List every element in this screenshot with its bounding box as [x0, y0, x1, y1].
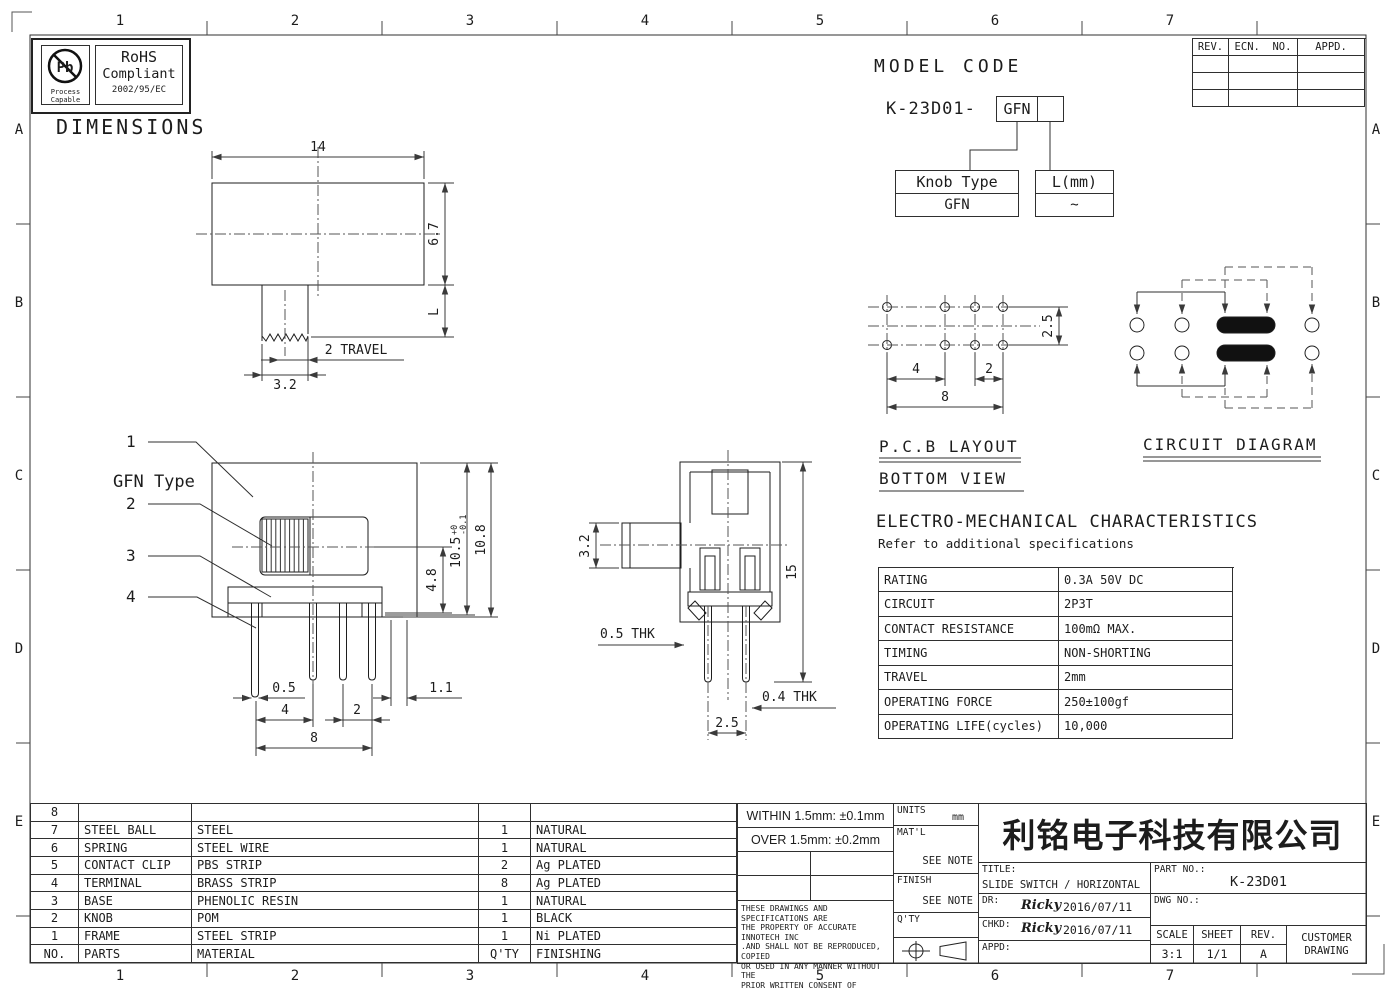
drawn-by-cell: DR: Ricky 2016/07/11	[978, 893, 1151, 918]
tolerance-lower: -0.1	[459, 515, 469, 535]
units-value: mm	[952, 812, 964, 823]
parts-header-qty: Q'TY	[479, 945, 531, 963]
part-no: 1	[31, 928, 79, 946]
front-view-drawing	[212, 452, 448, 697]
model-code-prefix: K-23D01-	[886, 99, 976, 119]
part-material	[192, 804, 479, 822]
part-qty: 1	[479, 822, 531, 840]
zone-col-label: 4	[641, 13, 649, 29]
part-qty: 8	[479, 875, 531, 893]
sheet-value: 1/1	[1207, 947, 1228, 961]
callout-3: 3	[126, 546, 138, 565]
part-material: POM	[192, 910, 479, 928]
dwg-number-label: DWG NO.:	[1154, 895, 1200, 906]
part-no: 8	[31, 804, 79, 822]
drawn-label: DR:	[982, 895, 999, 906]
front-span-dim: 8	[310, 731, 318, 746]
callout-1: 1	[126, 432, 138, 451]
em-label: CIRCUIT	[879, 592, 1059, 616]
length-value: ~	[1035, 193, 1114, 217]
zone-col-label: 7	[1166, 968, 1174, 984]
zone-col-label: 4	[641, 968, 649, 984]
front-view-type-label: GFN Type	[113, 472, 195, 492]
part-finishing: NATURAL	[531, 892, 737, 910]
top-view-drawing	[196, 147, 440, 356]
tolerance-empty-cell	[810, 875, 894, 901]
model-code-connectors	[970, 121, 1050, 170]
side-frame-thickness-dim: 0.5 THK	[600, 627, 655, 642]
customer-drawing-label: CUSTOMER DRAWING	[1301, 932, 1352, 958]
length-table: L(mm) ~	[1035, 170, 1114, 217]
tolerance-over-cell: OVER 1.5mm: ±0.2mm	[737, 827, 894, 852]
em-value: 2P3T	[1059, 592, 1233, 616]
zone-col-label: 2	[291, 968, 299, 984]
rohs-compliant-box: RoHS Compliant 2002/95/EC	[95, 45, 183, 105]
zone-col-label: 3	[466, 968, 474, 984]
top-view-stem-dim: 3.2	[273, 378, 296, 393]
model-code-heading: MODEL CODE	[874, 56, 1022, 77]
front-knob-base-dim: 4.8	[425, 568, 440, 591]
front-pin-width-dim: 0.5	[272, 681, 295, 696]
approved-by-cell: APPD:	[978, 940, 1151, 964]
tolerance-over: OVER 1.5mm: ±0.2mm	[751, 833, 880, 847]
material-value: SEE NOTE	[922, 855, 973, 867]
zone-row-label: C	[1372, 468, 1380, 484]
part-qty: 1	[479, 839, 531, 857]
rev-value: A	[1260, 947, 1267, 961]
tolerance-within-cell: WITHIN 1.5mm: ±0.1mm	[737, 803, 894, 828]
pcb-layout-title: P.C.B LAYOUT	[879, 437, 1019, 456]
part-no: 4	[31, 875, 79, 893]
material-label: MAT'L	[897, 827, 926, 838]
part-name	[79, 804, 192, 822]
rev-empty-cell	[1193, 90, 1229, 107]
part-material: STEEL STRIP	[192, 928, 479, 946]
part-number-cell: PART NO.: K-23D01	[1150, 862, 1367, 894]
zone-col-label: 1	[116, 13, 124, 29]
callout-4: 4	[126, 587, 138, 606]
units-label: UNITS	[897, 805, 926, 816]
part-finishing: Ag PLATED	[531, 875, 737, 893]
part-finishing	[531, 804, 737, 822]
engineering-drawing-sheet: 1 2 3 4 5 6 7 1 2 3 4 5 6 7 A B C D E A …	[0, 0, 1397, 988]
circuit-diagram-title: CIRCUIT DIAGRAM	[1143, 435, 1318, 454]
front-offset-dim: 1.1	[429, 681, 452, 696]
slider-contact	[1217, 317, 1275, 333]
sheet-label: SHEET	[1201, 929, 1233, 941]
pb-crossed-icon: Pb	[42, 46, 89, 86]
part-no: 7	[31, 822, 79, 840]
part-number-value: K-23D01	[1151, 874, 1366, 890]
part-finishing: Ni PLATED	[531, 928, 737, 946]
rev-label: REV.	[1251, 929, 1276, 941]
front-view-dimensions	[233, 463, 498, 756]
finish-value: SEE NOTE	[922, 895, 973, 907]
scale-value-cell: 3:1	[1150, 944, 1194, 964]
em-label: OPERATING FORCE	[879, 690, 1059, 714]
directive-label: 2002/95/EC	[96, 85, 182, 95]
units-cell: UNITS mm	[893, 803, 979, 826]
parts-header-finishing: FINISHING	[531, 945, 737, 963]
zone-col-label: 7	[1166, 13, 1174, 29]
parts-header-parts: PARTS	[79, 945, 192, 963]
rev-empty-cell	[1193, 73, 1229, 90]
rev-empty-cell	[1298, 56, 1365, 73]
zone-row-label: C	[15, 468, 23, 484]
rohs-label: RoHS	[96, 48, 182, 66]
svg-text:Pb: Pb	[57, 60, 74, 76]
zone-col-label: 5	[816, 13, 824, 29]
em-label: TIMING	[879, 641, 1059, 665]
side-total-height-dim: 15	[785, 564, 800, 580]
top-view-length-dim: L	[427, 308, 442, 316]
appd-col-header: APPD.	[1298, 39, 1365, 56]
part-qty: 2	[479, 857, 531, 875]
front-view-callout-leaders	[148, 442, 272, 628]
part-qty: 1	[479, 928, 531, 946]
side-row-pitch-dim: 2.5	[715, 716, 738, 731]
approved-label: APPD:	[982, 942, 1011, 953]
zone-row-label: D	[15, 641, 23, 657]
part-name: KNOB	[79, 910, 192, 928]
em-value: NON-SHORTING	[1059, 641, 1233, 665]
company-cell: 利铭电子科技有限公司	[978, 803, 1367, 863]
top-view-travel-dim: 2 TRAVEL	[325, 343, 388, 358]
em-label: CONTACT RESISTANCE	[879, 617, 1059, 641]
material-cell: MAT'L SEE NOTE	[893, 825, 979, 874]
rev-history-table: REV. ECN. NO. APPD.	[1192, 38, 1366, 107]
pcb-row-pitch-dim: 2.5	[1041, 314, 1056, 337]
customer-drawing-cell: CUSTOMER DRAWING	[1286, 925, 1367, 964]
zone-row-label: B	[15, 295, 23, 311]
scale-value: 3:1	[1162, 947, 1183, 961]
zone-row-label: D	[1372, 641, 1380, 657]
part-name: STEEL BALL	[79, 822, 192, 840]
part-finishing: NATURAL	[531, 839, 737, 857]
em-characteristics-title: ELECTRO-MECHANICAL CHARACTERISTICS	[876, 512, 1258, 532]
zone-row-label: A	[15, 122, 24, 138]
checked-signature: Ricky	[1021, 921, 1061, 936]
zone-row-label: B	[1372, 295, 1380, 311]
scale-label: SCALE	[1156, 929, 1188, 941]
pb-process-label: Process	[42, 88, 89, 96]
finish-label: FINISH	[897, 875, 931, 886]
callout-2: 2	[126, 494, 138, 513]
part-name: FRAME	[79, 928, 192, 946]
rev-empty-cell	[1298, 73, 1365, 90]
zone-col-label: 2	[291, 13, 299, 29]
zone-col-label: 6	[991, 968, 999, 984]
part-no: 3	[31, 892, 79, 910]
tolerance-empty-cell	[810, 851, 894, 876]
part-name: CONTACT CLIP	[79, 857, 192, 875]
em-value: 0.3A 50V DC	[1059, 568, 1233, 592]
dimensions-heading: DIMENSIONS	[56, 115, 206, 139]
em-value: 2mm	[1059, 666, 1233, 690]
zone-col-label: 1	[116, 968, 124, 984]
dwg-number-cell: DWG NO.:	[1150, 893, 1367, 926]
zone-col-label: 6	[991, 13, 999, 29]
finish-cell: FINISH SEE NOTE	[893, 873, 979, 913]
rev-empty-cell	[1229, 56, 1298, 73]
em-value: 250±100gf	[1059, 690, 1233, 714]
model-code-box: GFN	[996, 96, 1038, 122]
top-view-width-dim: 14	[310, 140, 326, 155]
title-value: SLIDE SWITCH / HORIZONTAL	[982, 879, 1140, 891]
projection-symbol-cell	[893, 937, 979, 964]
pcb-pitch-a-dim: 4	[912, 362, 920, 377]
scale-header-cell: SCALE	[1150, 925, 1194, 945]
part-qty: 1	[479, 892, 531, 910]
part-material: PBS STRIP	[192, 857, 479, 875]
part-no: 6	[31, 839, 79, 857]
ecn-col-header: ECN. NO.	[1229, 39, 1298, 56]
em-value: 10,000	[1059, 715, 1233, 739]
parts-header-material: MATERIAL	[192, 945, 479, 963]
circuit-diagram-drawing	[1130, 267, 1319, 408]
knob-type-label: Knob Type	[895, 170, 1019, 194]
em-label: OPERATING LIFE(cycles)	[879, 715, 1059, 739]
rev-empty-cell	[1298, 90, 1365, 107]
part-finishing: BLACK	[531, 910, 737, 928]
em-value: 100mΩ MAX.	[1059, 617, 1233, 641]
pcb-layout-drawing	[868, 295, 1040, 357]
em-characteristics-table: RATING 0.3A 50V DC CIRCUIT 2P3T CONTACT …	[878, 567, 1234, 739]
rev-col-header: REV.	[1193, 39, 1229, 56]
front-pitch-b-dim: 2	[353, 703, 361, 718]
rev-empty-cell	[1229, 90, 1298, 107]
part-finishing: Ag PLATED	[531, 857, 737, 875]
zone-col-label: 3	[466, 13, 474, 29]
compliant-label: Compliant	[96, 66, 182, 82]
model-code-empty-box	[1037, 96, 1064, 122]
sheet-value-cell: 1/1	[1193, 944, 1241, 964]
part-qty: 1	[479, 910, 531, 928]
drawn-signature: Ricky	[1021, 898, 1061, 913]
checked-by-cell: CHKD: Ricky 2016/07/11	[978, 917, 1151, 941]
drawn-date: 2016/07/11	[1063, 900, 1132, 914]
zone-row-label: E	[15, 814, 23, 830]
front-pitch-a-dim: 4	[281, 703, 289, 718]
zone-row-label: A	[1372, 122, 1381, 138]
knob-type-table: Knob Type GFN	[895, 170, 1019, 217]
em-characteristics-subtitle: Refer to additional specifications	[878, 536, 1134, 551]
qty-label: Q'TY	[897, 914, 920, 925]
part-no: 5	[31, 857, 79, 875]
part-qty	[479, 804, 531, 822]
top-view-height-dim: 6.7	[427, 222, 442, 245]
knob-type-value: GFN	[895, 193, 1019, 217]
pcb-span-dim: 8	[941, 390, 949, 405]
title-cell: TITLE: SLIDE SWITCH / HORIZONTAL	[978, 862, 1151, 894]
part-name: BASE	[79, 892, 192, 910]
svg-text:10.5: 10.5	[449, 537, 464, 568]
legal-notice: THESE DRAWINGS AND SPECIFICATIONS ARE TH…	[737, 900, 894, 964]
part-no: 2	[31, 910, 79, 928]
rev-header-cell: REV.	[1240, 925, 1287, 945]
rev-empty-cell	[1193, 56, 1229, 73]
em-label: TRAVEL	[879, 666, 1059, 690]
side-pin-thickness-dim: 0.4 THK	[762, 690, 817, 705]
pb-free-box: Pb Process Capable	[41, 45, 90, 105]
front-outer-height-dim: 10.8	[474, 524, 489, 555]
checked-label: CHKD:	[982, 919, 1011, 930]
checked-date: 2016/07/11	[1063, 923, 1132, 937]
rev-value-cell: A	[1240, 944, 1287, 964]
parts-table: 8 7 STEEL BALL STEEL 1 NATURAL 6 SPRING …	[30, 803, 738, 963]
company-name: 利铭电子科技有限公司	[1003, 809, 1343, 857]
part-material: STEEL WIRE	[192, 839, 479, 857]
zone-row-label: E	[1372, 814, 1380, 830]
pcb-pitch-b-dim: 2	[985, 362, 993, 377]
tolerance-within: WITHIN 1.5mm: ±0.1mm	[746, 809, 884, 823]
sheet-header-cell: SHEET	[1193, 925, 1241, 945]
bottom-view-title: BOTTOM VIEW	[879, 469, 1007, 488]
part-name: SPRING	[79, 839, 192, 857]
rev-empty-cell	[1229, 73, 1298, 90]
tolerance-empty-cell	[737, 851, 811, 876]
slider-contact	[1217, 345, 1275, 361]
pb-capable-label: Capable	[42, 96, 89, 104]
part-material: STEEL	[192, 822, 479, 840]
part-material: BRASS STRIP	[192, 875, 479, 893]
part-material: PHENOLIC RESIN	[192, 892, 479, 910]
tolerance-empty-cell	[737, 875, 811, 901]
parts-header-no: NO.	[31, 945, 79, 963]
length-label: L(mm)	[1035, 170, 1114, 194]
rohs-badge: Pb Process Capable RoHS Compliant 2002/9…	[31, 38, 191, 114]
em-label: RATING	[879, 568, 1059, 592]
part-name: TERMINAL	[79, 875, 192, 893]
front-inner-height-dim: 10.5 +0 -0.1	[449, 515, 469, 568]
side-knob-height-dim: 3.2	[578, 534, 593, 557]
qty-cell: Q'TY	[893, 912, 979, 938]
title-label: TITLE:	[982, 864, 1016, 875]
third-angle-projection-icon	[898, 940, 974, 962]
part-finishing: NATURAL	[531, 822, 737, 840]
